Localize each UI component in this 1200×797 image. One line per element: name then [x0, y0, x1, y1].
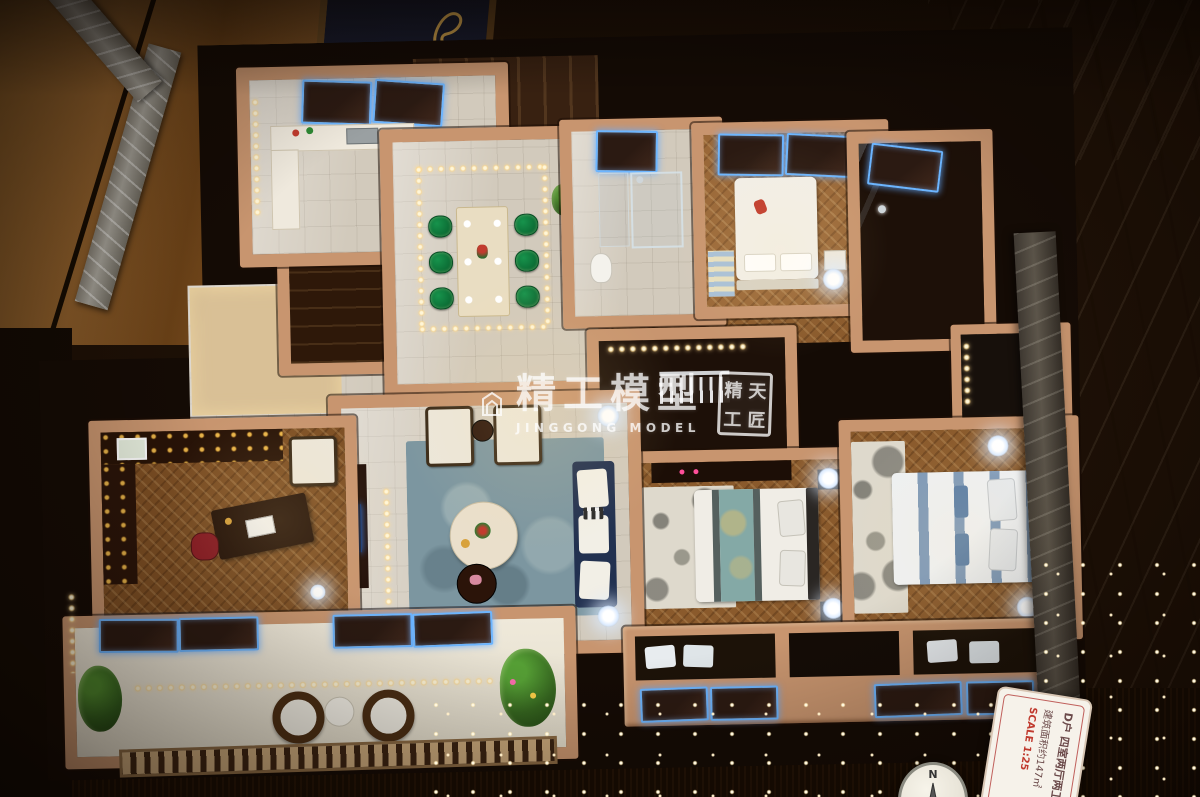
cushion [683, 645, 714, 668]
bed [734, 177, 818, 281]
cushion [926, 639, 958, 663]
pillow [988, 528, 1018, 571]
shower-partition [598, 173, 630, 248]
armchair [425, 406, 474, 467]
dining-table [456, 206, 510, 317]
seal-char: 匠 [744, 404, 769, 434]
bedroom-window [718, 133, 785, 176]
plaque-content: D户 四室两厅两卫 建筑面积约147㎡ SCALE 1:25 [983, 693, 1086, 797]
compass-north-label: N [928, 768, 937, 781]
watermark-title: 精工模型 [516, 374, 704, 414]
kitchen-counter [271, 149, 301, 230]
dining-chair [514, 213, 538, 235]
watermark-subtitle: JINGGONG MODEL [516, 421, 704, 435]
laptop [245, 515, 276, 538]
perfume-bottle [679, 469, 684, 474]
cushion [644, 645, 676, 670]
pillow [777, 499, 806, 537]
dining-chair [429, 251, 453, 273]
window-bay [635, 634, 776, 681]
kitchen-window [301, 80, 372, 126]
headboard [806, 488, 820, 600]
watermark: 精工模型 JINGGONG MODEL 精 天 工 匠 [482, 356, 772, 452]
desk-decor [224, 517, 232, 525]
balcony-window [178, 616, 259, 652]
facade-window [640, 686, 709, 723]
watermark-text-block: 精工模型 JINGGONG MODEL [516, 374, 704, 435]
bed-accent [753, 198, 768, 215]
facade-window [874, 681, 963, 718]
decor-item [470, 575, 482, 585]
bathroom-window [595, 130, 658, 173]
pillow [744, 253, 776, 272]
sofa [572, 461, 617, 608]
gold-tray [461, 539, 470, 548]
flower [530, 693, 536, 699]
seal-char: 工 [720, 403, 745, 433]
dresser [651, 460, 791, 483]
dining-chair [515, 249, 539, 271]
bookshelf-side [101, 464, 138, 585]
shower-head [636, 176, 643, 183]
armchair [289, 436, 338, 487]
facade-window [710, 685, 779, 720]
throw-pillow [583, 507, 603, 519]
bookshelf [100, 429, 283, 465]
window-bay [789, 631, 900, 677]
headboard [736, 279, 818, 291]
bed [892, 470, 1036, 585]
bedroom-window [785, 133, 853, 178]
balcony-window [332, 613, 413, 649]
seal-icon: 精 天 工 匠 [717, 371, 773, 437]
jinggong-logo-icon [482, 372, 502, 436]
room-bathroom-2 [846, 129, 997, 353]
pillow [780, 253, 812, 272]
dining-chair [430, 287, 454, 309]
pillow [987, 478, 1018, 522]
sofa-cushion [576, 468, 609, 508]
kitchen-window [372, 79, 445, 128]
dining-chair [428, 215, 452, 237]
flower [510, 679, 516, 685]
bed-trim [753, 489, 762, 601]
perfume-bottle [693, 469, 698, 474]
sofa-cushion [579, 561, 611, 600]
seal-char: 精 [721, 374, 746, 404]
room-bedroom-master [629, 447, 874, 646]
bathroom-window [867, 143, 943, 193]
bed-runner [719, 489, 755, 602]
pillow [955, 533, 970, 565]
photo-scene: 精工模型 JINGGONG MODEL 精 天 工 匠 D户 四室两厅两卫 建筑… [0, 0, 1200, 797]
desk-chair [191, 532, 220, 561]
bedroom-rug [708, 250, 735, 297]
cushion [969, 641, 999, 664]
led-strip [963, 342, 971, 406]
pillow [954, 485, 969, 517]
pillow [779, 550, 806, 587]
bed [694, 488, 820, 603]
toilet [590, 253, 613, 283]
sofa-cushion [578, 515, 609, 554]
wall-art [117, 438, 147, 461]
kitchen-sink [346, 128, 378, 145]
seal-char: 天 [745, 375, 770, 405]
balcony-window [99, 619, 179, 653]
balcony-window [412, 611, 493, 648]
table-flowers [477, 244, 488, 258]
dining-chair [516, 285, 540, 307]
table-flowers [474, 522, 490, 538]
compass-needle-icon [920, 781, 946, 797]
